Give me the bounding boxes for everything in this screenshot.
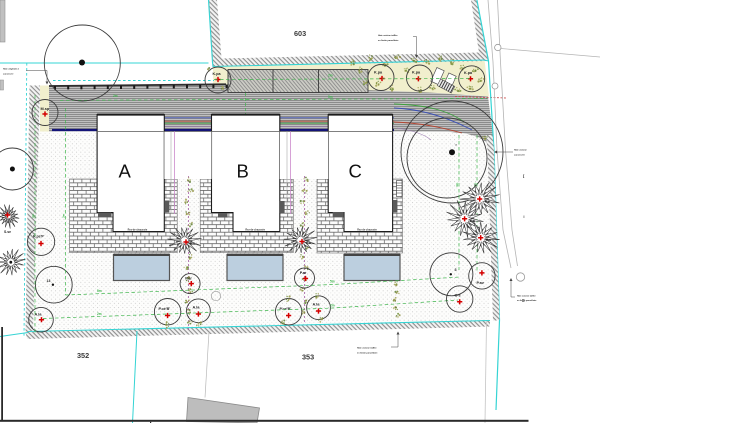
svg-text:A.la: A.la (313, 303, 321, 307)
svg-text:P.ar: P.ar (300, 271, 307, 275)
svg-text:603: 603 (294, 29, 306, 38)
svg-text:P.av: P.av (477, 281, 485, 285)
svg-text:A: A (119, 161, 132, 182)
svg-text:conservée: conservée (514, 155, 526, 157)
svg-text:Rez-de-chaussée: Rez-de-chaussée (128, 228, 148, 231)
svg-text:13: 13 (47, 279, 51, 283)
svg-text:B: B (237, 161, 249, 182)
svg-text:Rez-de-chaussée: Rez-de-chaussée (245, 228, 265, 231)
svg-text:352: 352 (77, 351, 89, 360)
svg-text:5m: 5m (97, 289, 102, 293)
svg-text:P.oe'B': P.oe'B' (280, 307, 292, 311)
svg-text:S.se: S.se (4, 230, 11, 234)
svg-text:A.la: A.la (193, 306, 201, 310)
svg-text:Rez-de-chaussée: Rez-de-chaussée (357, 228, 377, 231)
svg-text:3m: 3m (62, 213, 66, 218)
svg-text:2m: 2m (97, 312, 102, 316)
svg-text:f: f (456, 143, 457, 147)
svg-text:3: 3 (455, 268, 457, 272)
svg-text:K.pa: K.pa (374, 71, 383, 75)
svg-text:5m: 5m (328, 95, 333, 99)
svg-text:5m: 5m (330, 280, 335, 284)
svg-text:M.sp: M.sp (41, 107, 50, 111)
svg-text:2m: 2m (328, 74, 333, 78)
svg-text:Haie voisine: Haie voisine (514, 150, 528, 152)
svg-text:P.ar: P.ar (185, 277, 192, 281)
svg-text:4m: 4m (455, 182, 459, 187)
svg-text:A.la: A.la (35, 313, 43, 317)
svg-text:2m: 2m (113, 94, 118, 98)
svg-text:K.pa: K.pa (412, 71, 421, 75)
svg-text:C-s: C-s (455, 294, 461, 298)
svg-text:2m: 2m (330, 304, 335, 308)
svg-text:P.oe'B': P.oe'B' (159, 307, 171, 311)
svg-text:353: 353 (302, 353, 314, 362)
svg-text:conserver: conserver (3, 74, 14, 76)
svg-text:K.pa: K.pa (464, 71, 473, 75)
svg-text:C: C (349, 161, 362, 182)
svg-text:3m: 3m (31, 213, 35, 218)
svg-text:K.pa: K.pa (213, 72, 222, 76)
svg-text:l: l (524, 215, 525, 219)
